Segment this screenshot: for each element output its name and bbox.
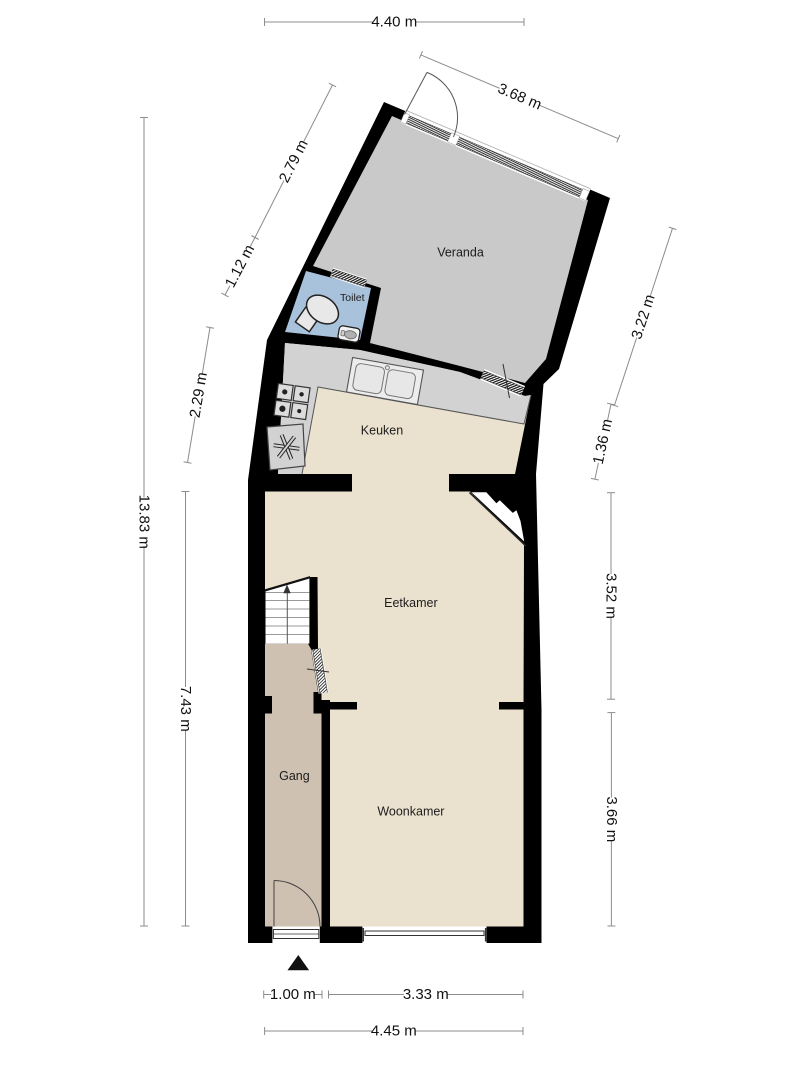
- svg-text:7.43 m: 7.43 m: [177, 686, 194, 732]
- svg-text:3.33 m: 3.33 m: [403, 986, 449, 1003]
- svg-text:4.45 m: 4.45 m: [371, 1023, 417, 1040]
- svg-text:Veranda: Veranda: [437, 246, 484, 260]
- svg-text:2.29 m: 2.29 m: [187, 371, 211, 419]
- svg-text:Gang: Gang: [279, 769, 310, 783]
- svg-text:4.40 m: 4.40 m: [371, 14, 417, 31]
- svg-text:Woonkamer: Woonkamer: [377, 805, 444, 819]
- svg-text:3.68 m: 3.68 m: [495, 80, 544, 114]
- svg-text:1.36 m: 1.36 m: [590, 417, 616, 465]
- svg-text:1.00 m: 1.00 m: [270, 986, 316, 1003]
- svg-text:Eetkamer: Eetkamer: [384, 596, 438, 610]
- svg-text:13.83 m: 13.83 m: [136, 495, 153, 549]
- svg-text:2.79 m: 2.79 m: [276, 137, 312, 186]
- svg-text:3.52 m: 3.52 m: [603, 573, 620, 619]
- svg-text:1.12 m: 1.12 m: [222, 242, 258, 291]
- svg-text:Toilet: Toilet: [340, 292, 365, 304]
- svg-text:3.22 m: 3.22 m: [628, 292, 658, 341]
- svg-text:3.66 m: 3.66 m: [603, 796, 620, 842]
- svg-text:Keuken: Keuken: [361, 424, 403, 438]
